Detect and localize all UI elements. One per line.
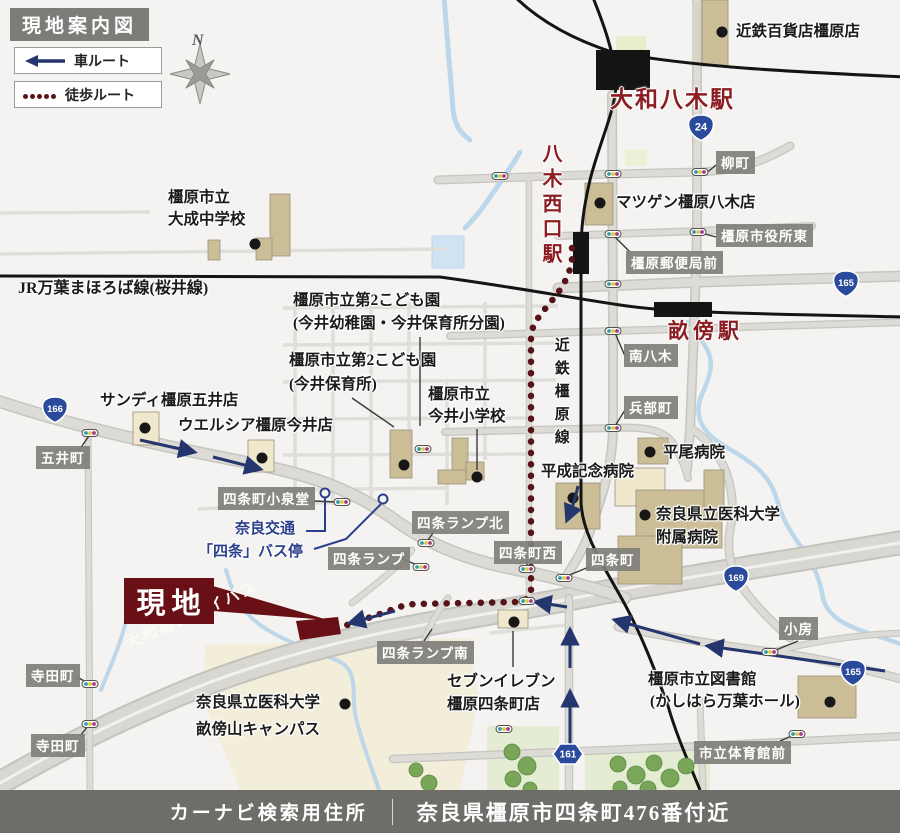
footer-address: 奈良県橿原市四条町476番付近 xyxy=(417,797,731,827)
traffic-signal-icon xyxy=(605,171,621,178)
intersection-taiikukan-mae: 市立体育館前 xyxy=(694,741,791,764)
traffic-signal-icon xyxy=(605,328,621,335)
intersection-obusa: 小房 xyxy=(779,617,818,640)
poi-med-univ-campus-line2: 畝傍山キャンパス xyxy=(196,720,320,739)
poi-bus-stop-line1: 奈良交通 xyxy=(235,517,295,538)
svg-text:165: 165 xyxy=(845,667,862,678)
compass-north-label: N xyxy=(192,32,204,50)
traffic-signal-icon xyxy=(605,425,621,432)
traffic-signal-icon xyxy=(519,566,535,573)
poi-library-line2: (かしはら万葉ホール) xyxy=(650,692,800,711)
intersection-teradacho-south: 寺田町 xyxy=(31,734,85,757)
footer-bar: カーナビ検索用住所 奈良県橿原市四条町476番付近 xyxy=(0,790,900,833)
intersection-minami-yagi: 南八木 xyxy=(624,344,678,367)
intersection-goicho: 五井町 xyxy=(36,446,90,469)
traffic-signal-icon xyxy=(492,173,508,180)
traffic-signal-icon xyxy=(418,540,434,547)
svg-text:165: 165 xyxy=(838,278,855,289)
legend-walk-label: 徒歩ルート xyxy=(65,85,135,105)
svg-text:166: 166 xyxy=(47,404,63,415)
traffic-signal-icon xyxy=(605,281,621,288)
intersection-shijocho: 四条町 xyxy=(586,548,640,571)
route-shield-161: 161 xyxy=(553,744,583,764)
poi-kodomo-hoiku-line1: 橿原市立第2こども園 xyxy=(289,351,436,370)
footer-navi-label: カーナビ検索用住所 xyxy=(170,798,368,825)
intersection-yubinkyoku-mae: 橿原郵便局前 xyxy=(626,251,723,274)
poi-taisei-jhs-line1: 橿原市立 xyxy=(168,188,230,207)
poi-seven-eleven-line2: 橿原四条町店 xyxy=(447,695,540,714)
station-unebi: 畝傍駅 xyxy=(668,315,743,345)
traffic-signal-icon xyxy=(692,169,708,176)
traffic-signal-icon xyxy=(413,564,429,571)
traffic-signal-icon xyxy=(605,231,621,238)
map-title: 現地案内図 xyxy=(10,8,149,41)
footer-divider xyxy=(392,799,393,825)
intersection-koizumido: 四条町小泉堂 xyxy=(218,487,315,510)
poi-seven-eleven-line1: セブンイレブン xyxy=(447,672,556,691)
traffic-signal-icon xyxy=(82,681,98,688)
poi-sundi: サンディ橿原五井店 xyxy=(100,391,238,410)
bus-stop-icon xyxy=(321,489,330,498)
traffic-signal-icon xyxy=(334,499,350,506)
intersection-ramp-kita: 四条ランプ北 xyxy=(412,511,509,534)
poi-library-line1: 橿原市立図書館 xyxy=(648,670,757,689)
poi-kodomo-hoiku-line2: (今井保育所) xyxy=(289,375,377,394)
intersection-teradacho-north: 寺田町 xyxy=(26,664,80,687)
site-guide-map: 24 165 166 169 165 161 現地案内図 N 車ルー xyxy=(0,0,900,833)
svg-text:169: 169 xyxy=(728,573,744,584)
poi-kodomo-bunen-line1: 橿原市立第2こども園 xyxy=(293,291,440,310)
intersection-ramp-minami: 四条ランプ南 xyxy=(377,641,474,664)
intersection-shijocho-nishi: 四条町西 xyxy=(494,541,562,564)
poi-matsugen: マツゲン橿原八木店 xyxy=(616,193,756,212)
traffic-signal-icon xyxy=(690,229,706,236)
jr-line-label: JR万葉まほろば線(桜井線) xyxy=(18,279,208,299)
intersection-shiyakusho-higashi: 橿原市役所東 xyxy=(716,224,813,247)
poi-med-univ-hospital-line1: 奈良県立医科大学 xyxy=(656,505,780,524)
poi-bus-stop-line2: 「四条」バス停 xyxy=(198,540,303,561)
traffic-signal-icon xyxy=(519,598,535,605)
poi-taisei-jhs-line2: 大成中学校 xyxy=(168,210,246,229)
car-route-arrow-icon xyxy=(23,54,67,68)
poi-welcia: ウエルシア橿原今井店 xyxy=(178,416,333,435)
traffic-signal-icon xyxy=(496,726,512,733)
poi-kodomo-bunen-line2: (今井幼稚園・今井保育所分園) xyxy=(293,314,505,333)
poi-med-univ-hospital-line2: 附属病院 xyxy=(656,528,718,547)
svg-text:24: 24 xyxy=(695,122,708,134)
traffic-signal-icon xyxy=(82,430,98,437)
poi-imai-es-line1: 橿原市立 xyxy=(428,385,490,404)
legend-car-route: 車ルート xyxy=(14,47,162,74)
yagi-nishiguchi-station-mark xyxy=(573,232,589,274)
poi-hirao-hospital: 平尾病院 xyxy=(663,443,725,462)
bus-stop-icon xyxy=(379,495,388,504)
site-label: 現地 xyxy=(124,578,214,624)
traffic-signal-icon xyxy=(415,446,431,453)
traffic-signal-icon xyxy=(556,575,572,582)
traffic-signal-icon xyxy=(762,649,778,656)
traffic-signal-icon xyxy=(82,721,98,728)
intersection-ramp: 四条ランプ xyxy=(328,547,410,570)
poi-med-univ-campus-line1: 奈良県立医科大学 xyxy=(196,693,320,712)
station-yamato-yagi: 大和八木駅 xyxy=(610,80,735,114)
station-yagi-nishiguchi: 八木西口駅 xyxy=(536,143,565,268)
walk-route-dots-icon xyxy=(23,86,58,104)
intersection-yanagicho: 柳町 xyxy=(716,151,755,174)
legend-walk-route: 徒歩ルート xyxy=(14,81,162,108)
traffic-signal-icon xyxy=(789,731,805,738)
poi-heisei-hospital: 平成記念病院 xyxy=(541,462,634,481)
intersection-hyobucho: 兵部町 xyxy=(624,396,678,419)
poi-imai-es-line2: 今井小学校 xyxy=(428,407,506,426)
kintetsu-line-label: 近鉄橿原線 xyxy=(551,337,570,452)
poi-kintetsu-dept: 近鉄百貨店橿原店 xyxy=(736,22,860,41)
svg-text:161: 161 xyxy=(560,750,577,761)
legend-car-label: 車ルート xyxy=(74,51,130,71)
